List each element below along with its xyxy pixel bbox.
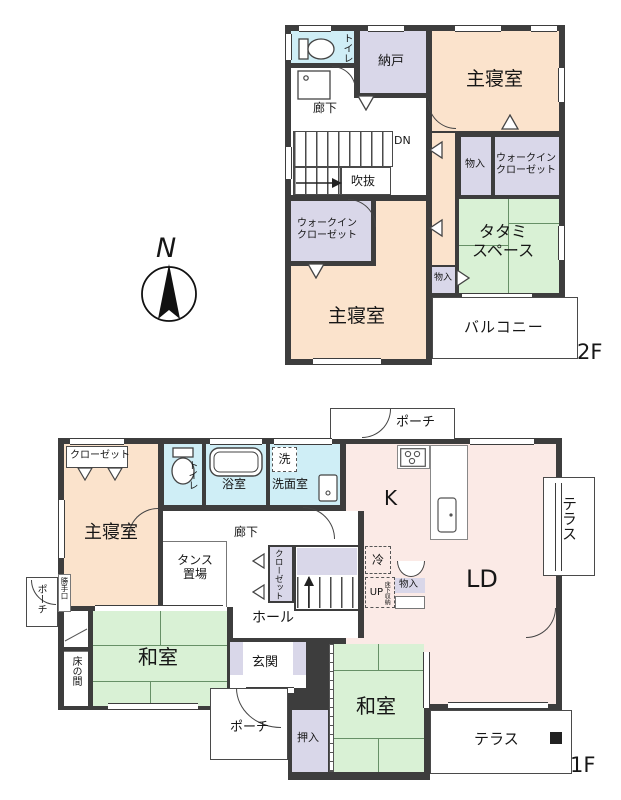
label-1f-washitsu-a: 和室 [138,645,178,669]
floor-plan-page: N [0,0,621,800]
label-1f-porch-left: ポーチ [34,584,46,614]
label-2f-corridor: 廊下 [313,101,337,115]
floor-tag-1f: 1F [570,753,595,778]
tatami-line [334,670,424,671]
door-mark-2f-closet-b [456,268,470,288]
stairs-1f-landing [297,548,357,575]
label-1f-bath: 浴室 [222,477,246,491]
floor-tag-2f: 2F [577,340,602,365]
window-1f [470,438,534,445]
label-2f-wic-right: ウォークイン クローゼット [496,153,556,177]
label-1f-oshiire: 押入 [297,731,319,744]
window-2f [285,34,292,60]
door-mark-2f-storeroom [356,95,376,111]
wall-2f-toilet-bottom [291,63,354,68]
stairs-direction-arrow-1f [303,576,315,608]
washbasin-icon-2f [297,70,331,100]
terrace-slider-bottom [448,702,548,709]
post [550,732,562,744]
door-mark-closet-mid-b [252,583,265,601]
fridge-box: 冷 [365,546,391,574]
shoe-cabinet-left [230,642,243,675]
label-1f-master: 主寝室 [84,522,138,544]
window-2f [368,25,404,32]
label-1f-closet-top: クローゼット [70,450,130,462]
window-2f [285,147,292,179]
label-2f-dn: DN [394,134,411,147]
door-mark-2f-master-top [500,114,520,130]
tatami-line [93,681,227,682]
washbasin-icon-1f [318,474,338,502]
label-2f-balcony: バルコニー [464,318,544,336]
label-1f-washroom: 洗面室 [272,477,308,491]
label-1f-terrace-right: テラス [560,496,578,541]
label-up: UP [370,587,383,599]
label-1f-tansu: タンス 置場 [168,553,222,582]
door-mark-closet-mid-a [252,552,265,570]
label-2f-wic-left: ウォークイン クローゼット [297,218,357,242]
laundry-box: 洗 [272,447,297,472]
room-1f-side-closet [64,611,88,647]
label-1f-porch-top: ポーチ [396,415,435,431]
window-1f [58,500,65,558]
label-underfloor-storage: 床下収納 [383,581,390,605]
door-mark-closet-top-b [106,467,124,481]
stairs-direction-arrow-2f [296,177,342,189]
wall-2f-wic-left-bottom [291,261,376,266]
stairs-2f [293,131,393,167]
window-1f [274,438,332,445]
door-mark-2f-corridor-a [429,140,443,160]
label-1f-closet-mid: クローゼット [273,549,283,600]
label-1f-tokonoma: 床の間 [69,656,81,686]
toilet-icon-2f [298,35,336,63]
label-1f-hall: ホール [252,610,294,627]
label-fridge: 冷 [372,553,384,567]
window-2f [313,358,381,365]
label-1f-terrace-bottom: テラス [474,730,519,748]
window-1f [108,703,198,710]
tatami-line [378,738,379,772]
window-2f [299,25,331,32]
window-1f [423,652,430,708]
tatami-line [160,611,161,645]
label-1f-kitchen: K [384,486,397,510]
label-2f-closet-b: 物入 [434,273,452,284]
compass-icon [138,262,200,324]
label-2f-master-bottom: 主寝室 [328,305,385,328]
door-mark-closet-top-a [76,467,94,481]
porch-top [330,408,455,439]
window-1f [210,438,262,445]
label-2f-master-top: 主寝室 [466,68,523,91]
room-1f-closet-k-lower [395,596,425,609]
label-2f-toilet: トイレ [340,33,352,63]
wall-1f-washitsu1-right [227,607,233,642]
kitchen-sink-icon [437,497,457,533]
label-2f-storeroom: 納戸 [378,54,404,70]
window-2f [455,25,501,32]
label-1f-back-door: 勝手口 [60,577,69,600]
compass-north-label: N [156,233,176,265]
tatami-line [334,738,424,739]
label-2f-tatami: タタミ スペース [472,222,534,260]
tatami-line [378,644,379,670]
window-2f [558,68,565,102]
wall-2f-wic-left-right [371,201,376,261]
door-mark-2f-wic-left [306,263,326,279]
label-1f-living: LD [466,565,498,594]
door-mark-2f-corridor-b [429,218,443,238]
label-1f-washitsu-b: 和室 [356,694,396,718]
label-1f-corridor: 廊下 [234,525,258,539]
label-1f-entrance: 玄関 [252,655,278,671]
stove-icon [400,448,426,467]
diagonal-mark [64,611,88,647]
underfloor-storage-box: UP 床下収納 [365,577,395,608]
window-2f [531,25,557,32]
label-laundry: 洗 [278,452,290,466]
bathtub-icon [209,447,263,477]
label-2f-void: 吹抜 [351,174,375,188]
label-1f-toilet: トイレ [185,460,197,490]
shoe-cabinet-right [293,642,306,675]
window-2f [558,226,565,260]
window-1f [70,438,124,445]
label-2f-closet-a: 物入 [465,159,485,171]
label-1f-porch-bottom: ポーチ [230,720,269,736]
label-1f-closet-k: 物入 [399,579,418,590]
